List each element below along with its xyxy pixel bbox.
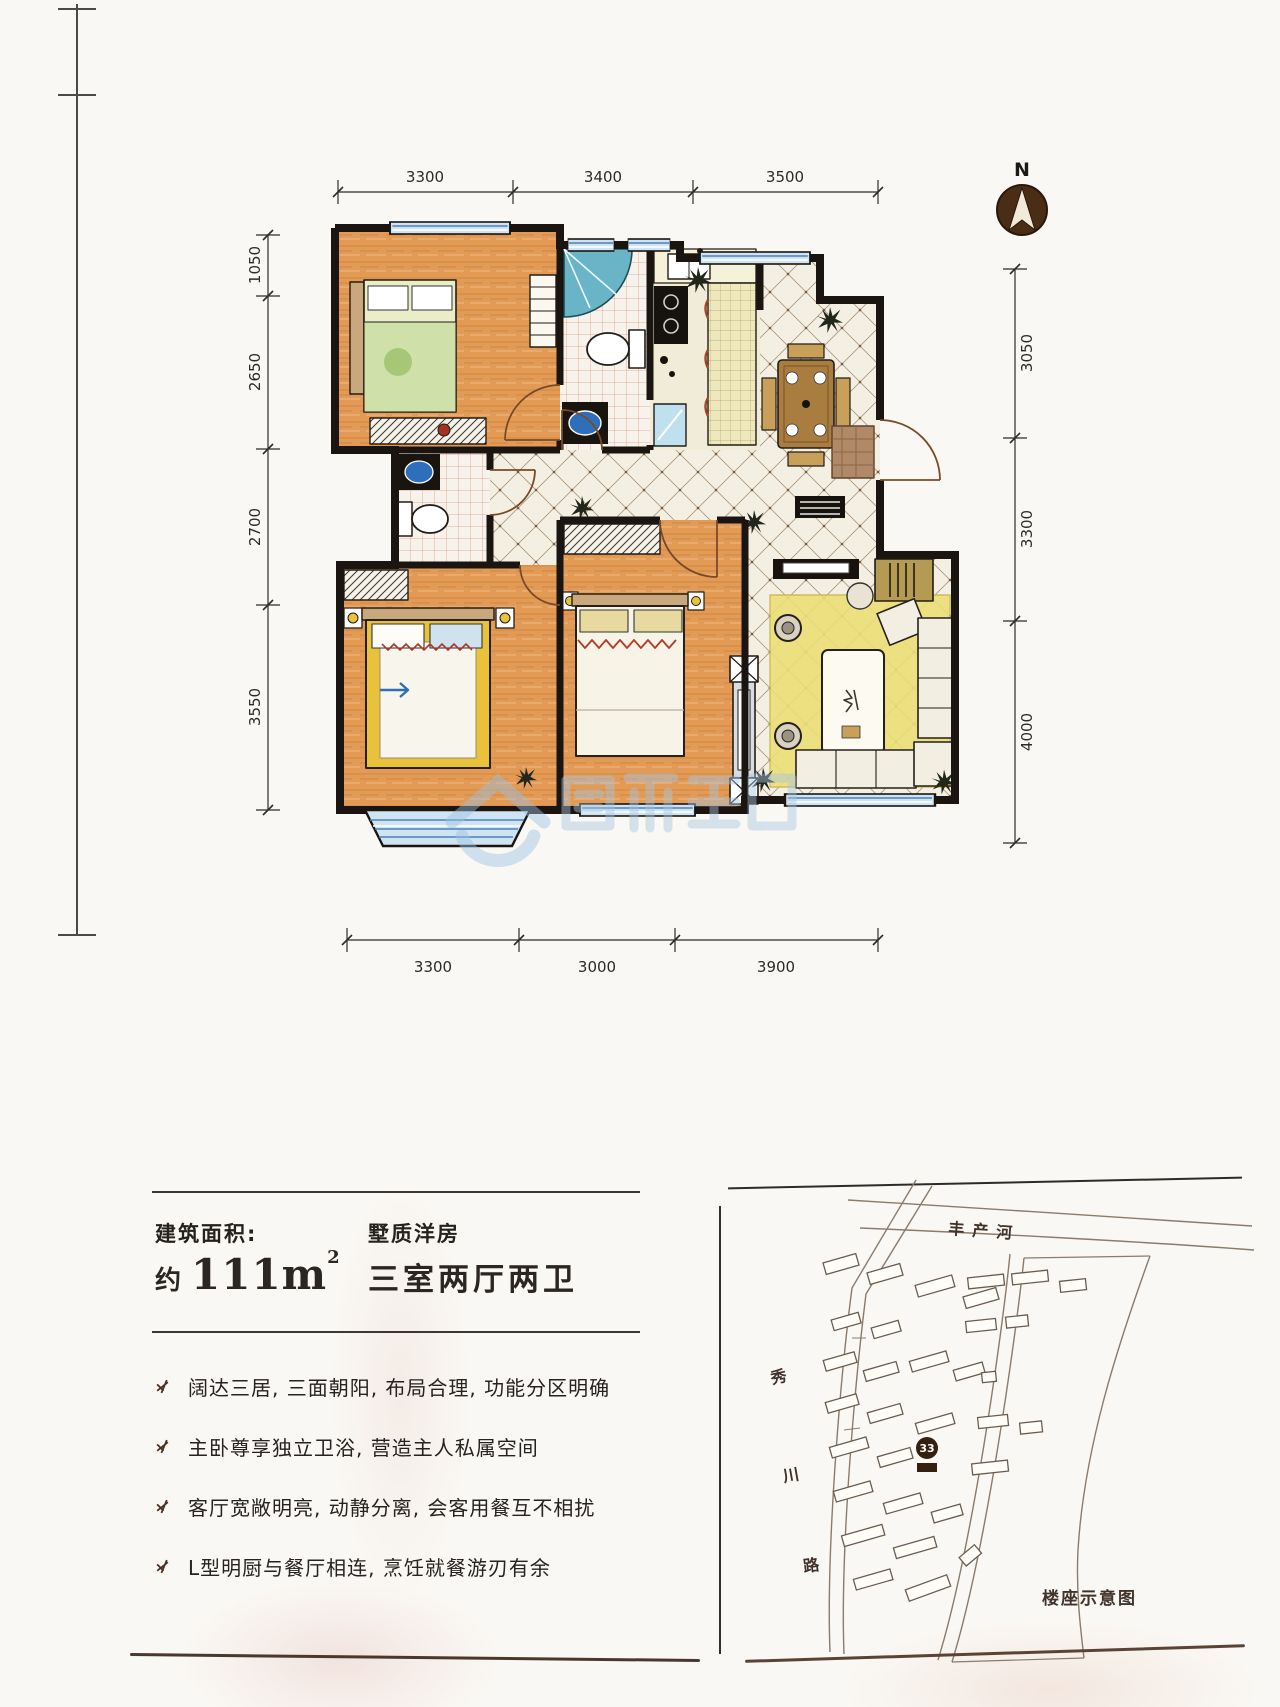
dim-top-1: 3300 <box>406 168 444 186</box>
kitchen-window <box>628 239 670 251</box>
site-buildings <box>823 1254 1087 1602</box>
edge-tick <box>58 94 96 96</box>
feature-item: 客厅宽敞明亮, 动静分离, 会客用餐互不相扰 <box>155 1492 675 1521</box>
dim-left-3: 2700 <box>246 508 264 546</box>
entry-door <box>880 420 940 480</box>
left-bottom-rule <box>130 1653 700 1662</box>
info-mid-rule <box>152 1331 640 1333</box>
dim-bottom-3: 3900 <box>757 958 795 976</box>
feature-item: 主卧尊享独立卫浴, 营造主人私属空间 <box>155 1432 675 1461</box>
layout-value: 三室两厅两卫 <box>368 1265 578 1296</box>
dim-left-4: 3550 <box>246 688 264 726</box>
feature-text: L型明厨与餐厅相连, 烹饪就餐游刃有余 <box>188 1552 551 1581</box>
river-label: 丰产河 <box>948 1219 1021 1243</box>
living-room-window <box>785 794 935 806</box>
dim-left-1: 1050 <box>246 246 264 284</box>
page-edge-line <box>76 4 78 936</box>
site-map-caption: 楼座示意图 <box>1042 1588 1137 1609</box>
feature-text: 阔达三居, 三面朝阳, 布局合理, 功能分区明确 <box>188 1372 610 1401</box>
feature-text: 客厅宽敞明亮, 动静分离, 会客用餐互不相扰 <box>188 1492 595 1521</box>
area-approx: 约 <box>155 1268 181 1294</box>
area-number: 111m2 <box>191 1256 341 1294</box>
feature-bullet-icon <box>155 1439 170 1454</box>
area-value: 约 111m2 <box>155 1256 341 1294</box>
master-bay-window <box>365 810 530 846</box>
feature-bullet-icon <box>155 1379 170 1394</box>
dimension-chain-bottom <box>342 928 883 952</box>
dim-right-1: 3050 <box>1018 334 1036 372</box>
bathroom-1-window <box>568 239 614 251</box>
edge-tick <box>58 8 96 10</box>
dim-right-3: 4000 <box>1018 713 1036 751</box>
river-road <box>848 1200 1252 1226</box>
series-label: 墅质洋房 <box>368 1218 460 1248</box>
info-top-rule <box>152 1191 640 1193</box>
road-label-char: 秀 <box>768 1366 789 1388</box>
building-33-marker: 33 <box>916 1437 938 1472</box>
compass-label: N <box>1014 159 1030 181</box>
feature-text: 主卧尊享独立卫浴, 营造主人私属空间 <box>188 1432 539 1461</box>
floor-plan: 3300 3400 3500 1050 2650 2700 3550 3050 … <box>230 130 1070 1010</box>
hallway-floor <box>490 520 560 565</box>
dim-top-2: 3400 <box>584 168 622 186</box>
feature-item: L型明厨与餐厅相连, 烹饪就餐游刃有余 <box>155 1552 675 1581</box>
road-label-char: 川 <box>780 1464 800 1486</box>
dim-bottom-2: 3000 <box>578 958 616 976</box>
road-label-char: 路 <box>802 1555 821 1576</box>
edge-tick <box>58 934 96 936</box>
feature-list: 阔达三居, 三面朝阳, 布局合理, 功能分区明确 主卧尊享独立卫浴, 营造主人私… <box>155 1372 675 1612</box>
building-badge-label: 33 <box>919 1442 934 1455</box>
feature-bullet-icon <box>155 1559 170 1574</box>
site-map: 33 丰产河 秀 川 路 楼座示意图 <box>720 1130 1260 1690</box>
dim-right-2: 3300 <box>1018 510 1036 548</box>
bedroom-2-window <box>390 222 510 234</box>
area-exponent: 2 <box>327 1247 341 1268</box>
compass: N <box>997 159 1047 235</box>
area-label: 建筑面积: <box>155 1218 257 1248</box>
dining-window <box>700 252 810 264</box>
dim-top-3: 3500 <box>766 168 804 186</box>
brochure-page: 3300 3400 3500 1050 2650 2700 3550 3050 … <box>0 0 1280 1707</box>
dim-left-2: 2650 <box>246 353 264 391</box>
feature-bullet-icon <box>155 1499 170 1514</box>
dim-bottom-1: 3300 <box>414 958 452 976</box>
feature-item: 阔达三居, 三面朝阳, 布局合理, 功能分区明确 <box>155 1372 675 1401</box>
